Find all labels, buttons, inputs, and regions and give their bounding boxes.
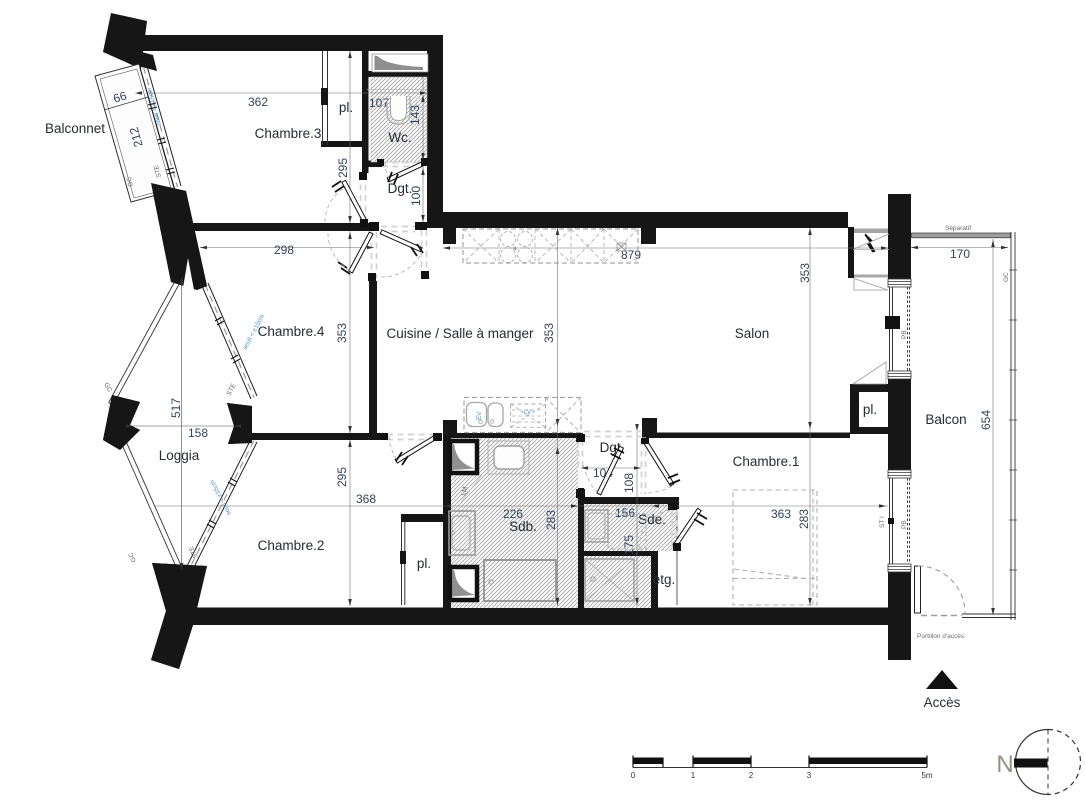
svg-text:363: 363 bbox=[771, 507, 791, 521]
svg-text:107: 107 bbox=[369, 96, 389, 110]
svg-text:362: 362 bbox=[248, 95, 268, 109]
svg-text:Sdb.: Sdb. bbox=[509, 519, 537, 534]
svg-text:295: 295 bbox=[335, 467, 349, 487]
svg-text:PB: PB bbox=[901, 330, 908, 339]
svg-text:517: 517 bbox=[169, 398, 183, 418]
svg-text:Séparatif: Séparatif bbox=[945, 225, 971, 232]
svg-text:Accès: Accès bbox=[924, 695, 961, 710]
svg-text:Sde.: Sde. bbox=[638, 512, 666, 527]
svg-text:Balconnet: Balconnet bbox=[45, 121, 105, 136]
svg-text:pl.: pl. bbox=[863, 402, 877, 417]
svg-text:353: 353 bbox=[798, 263, 812, 283]
svg-text:1: 1 bbox=[691, 771, 696, 780]
svg-text:295: 295 bbox=[336, 158, 350, 178]
svg-text:175: 175 bbox=[622, 535, 636, 555]
svg-text:353: 353 bbox=[335, 323, 349, 343]
svg-text:Loggia: Loggia bbox=[159, 448, 200, 463]
svg-text:0: 0 bbox=[631, 771, 636, 780]
svg-text:283: 283 bbox=[797, 509, 811, 529]
svg-text:Cuisine / Salle à manger: Cuisine / Salle à manger bbox=[386, 326, 534, 341]
svg-text:a: a bbox=[513, 245, 517, 252]
svg-text:GC: GC bbox=[1003, 272, 1010, 282]
svg-text:353: 353 bbox=[542, 323, 556, 343]
svg-text:Chambre.2: Chambre.2 bbox=[258, 538, 325, 553]
svg-text:156: 156 bbox=[615, 506, 635, 520]
svg-text:Chambre.3: Chambre.3 bbox=[255, 126, 322, 141]
svg-text:pl.: pl. bbox=[417, 556, 431, 571]
svg-text:Dgt.: Dgt. bbox=[388, 181, 413, 196]
svg-text:170: 170 bbox=[950, 247, 970, 261]
svg-text:Salon: Salon bbox=[735, 326, 770, 341]
svg-text:298: 298 bbox=[274, 243, 294, 257]
svg-text:Portillon d'accès: Portillon d'accès bbox=[917, 633, 965, 640]
svg-text:Chambre.1: Chambre.1 bbox=[733, 454, 800, 469]
svg-text:654: 654 bbox=[979, 410, 993, 430]
svg-text:158: 158 bbox=[188, 426, 208, 440]
svg-text:2: 2 bbox=[749, 771, 754, 780]
svg-text:Wc.: Wc. bbox=[388, 130, 411, 145]
svg-text:PB: PB bbox=[901, 520, 908, 529]
svg-text:pl.: pl. bbox=[339, 100, 353, 115]
svg-text:ST I: ST I bbox=[879, 516, 886, 528]
svg-text:N: N bbox=[996, 751, 1013, 778]
svg-text:etg.: etg. bbox=[653, 572, 676, 587]
svg-text:LV: LV bbox=[524, 409, 532, 416]
svg-text:Chambre.4: Chambre.4 bbox=[258, 324, 325, 339]
svg-text:5m: 5m bbox=[921, 771, 932, 780]
svg-text:283: 283 bbox=[544, 510, 558, 530]
svg-text:EV: EV bbox=[476, 411, 483, 420]
svg-text:3: 3 bbox=[807, 771, 812, 780]
svg-text:Balcon: Balcon bbox=[925, 412, 966, 427]
svg-text:108: 108 bbox=[622, 473, 636, 493]
svg-text:368: 368 bbox=[356, 492, 376, 506]
